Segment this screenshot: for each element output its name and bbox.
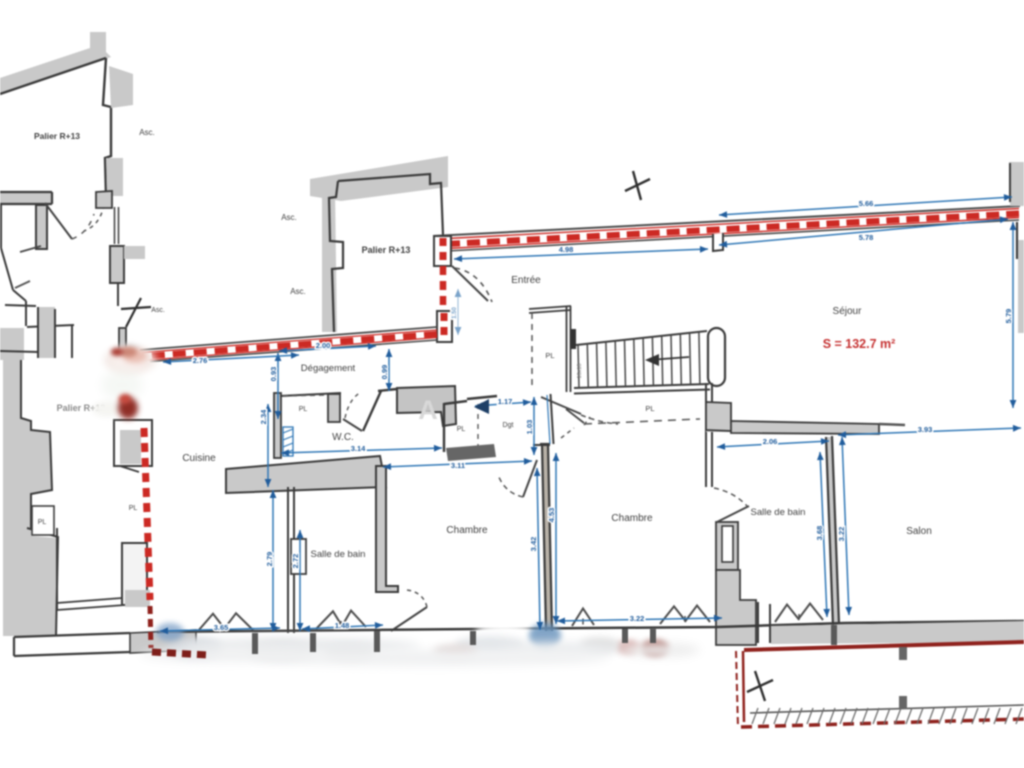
svg-text:0.99: 0.99: [380, 365, 389, 380]
svg-text:Salle de bain: Salle de bain: [311, 549, 366, 560]
svg-text:1.17: 1.17: [498, 397, 513, 406]
svg-text:3.14: 3.14: [351, 444, 366, 453]
svg-text:5.66: 5.66: [859, 199, 874, 208]
svg-text:Dgt: Dgt: [503, 422, 514, 429]
svg-text:PL: PL: [129, 505, 138, 512]
svg-text:3.22: 3.22: [630, 614, 645, 623]
svg-text:16x18: 16x18: [577, 364, 583, 379]
svg-text:Salon: Salon: [906, 526, 932, 537]
svg-text:5.79: 5.79: [1004, 309, 1013, 324]
svg-text:Asc.: Asc.: [290, 287, 306, 296]
svg-text:2.34: 2.34: [259, 409, 268, 424]
svg-text:2.76: 2.76: [193, 356, 208, 365]
svg-text:3.65: 3.65: [214, 623, 229, 632]
svg-text:S = 132.7 m²: S = 132.7 m²: [823, 337, 896, 351]
svg-text:5.78: 5.78: [859, 233, 874, 242]
svg-text:Asc.: Asc.: [281, 213, 297, 222]
svg-text:PL: PL: [645, 404, 654, 413]
svg-text:4.53: 4.53: [547, 508, 556, 523]
svg-text:A: A: [418, 395, 438, 425]
svg-text:3.11: 3.11: [451, 461, 465, 470]
svg-text:Séjour: Séjour: [833, 306, 863, 317]
svg-text:2.72: 2.72: [291, 554, 300, 569]
svg-text:3.93: 3.93: [918, 425, 933, 434]
svg-text:1.48: 1.48: [335, 621, 350, 630]
svg-text:Asc.: Asc.: [151, 307, 165, 314]
svg-text:PL: PL: [545, 351, 554, 360]
svg-text:Dégagement: Dégagement: [301, 363, 356, 374]
svg-text:3.22: 3.22: [837, 527, 846, 542]
svg-text:Chambre: Chambre: [446, 525, 488, 536]
svg-text:2.79: 2.79: [265, 552, 274, 567]
svg-text:Asc.: Asc.: [139, 128, 155, 137]
svg-text:1.50: 1.50: [452, 307, 458, 319]
svg-text:2.06: 2.06: [763, 437, 778, 446]
svg-text:Palier R+13: Palier R+13: [34, 131, 80, 141]
svg-text:Entrée: Entrée: [511, 275, 541, 286]
svg-text:Chambre: Chambre: [611, 513, 653, 524]
svg-text:PL: PL: [457, 426, 466, 433]
svg-text:3.68: 3.68: [815, 526, 824, 541]
svg-text:0.93: 0.93: [269, 367, 278, 382]
svg-text:4.98: 4.98: [559, 245, 574, 254]
svg-text:W.C.: W.C.: [332, 432, 354, 443]
svg-text:Cuisine: Cuisine: [182, 453, 216, 464]
svg-text:PL: PL: [38, 519, 47, 526]
svg-text:2.00: 2.00: [316, 341, 331, 350]
svg-text:PL: PL: [299, 406, 308, 413]
svg-text:Palier R+13: Palier R+13: [362, 245, 411, 255]
svg-text:1.03: 1.03: [525, 420, 534, 435]
svg-text:Salle de bain: Salle de bain: [751, 507, 806, 518]
svg-text:3.42: 3.42: [529, 537, 538, 552]
